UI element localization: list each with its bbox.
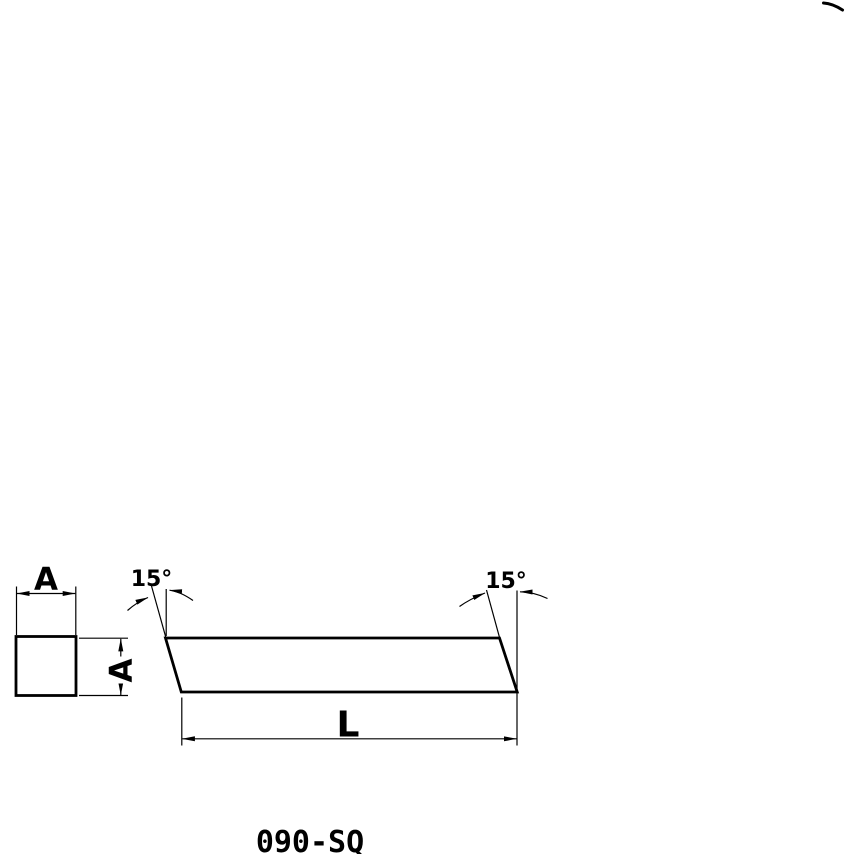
l-length-label: L xyxy=(337,705,360,746)
blank-outline xyxy=(166,638,518,692)
part-number: 090-SQ xyxy=(256,825,364,854)
left-angle-callout: 15° xyxy=(128,567,194,638)
drawing-canvas: A A 15° 15° L 090-SQ xyxy=(0,0,854,854)
square-outline xyxy=(16,637,76,696)
right-angle-arrow-left xyxy=(460,593,486,607)
left-angle-label: 15° xyxy=(131,567,173,592)
left-angle-arrow-right xyxy=(170,590,194,600)
a-height-label: A xyxy=(104,659,140,683)
corner-arc-fragment xyxy=(824,3,843,10)
end-view-square xyxy=(16,637,76,696)
a-height-dimension: A xyxy=(79,638,140,695)
side-view-blank xyxy=(166,638,518,692)
right-angle-callout: 15° xyxy=(460,569,548,746)
a-width-label: A xyxy=(34,562,58,598)
left-angle-slant-extension xyxy=(152,586,167,638)
a-width-dimension: A xyxy=(17,562,76,636)
l-length-dimension: L xyxy=(182,698,517,746)
right-angle-label: 15° xyxy=(485,569,527,594)
left-angle-arrow-left xyxy=(128,598,149,611)
right-angle-slant-extension xyxy=(487,590,500,639)
technical-drawing: A A 15° 15° L 090-SQ xyxy=(0,0,854,854)
